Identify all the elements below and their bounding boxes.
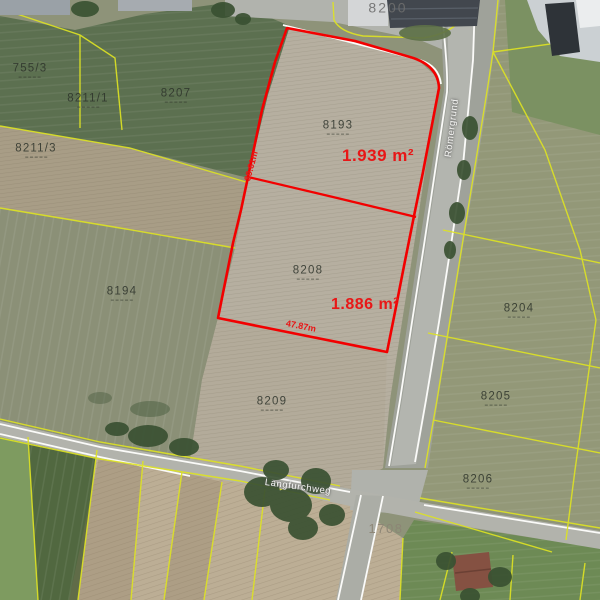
parcel-label-8194: 8194 (107, 286, 137, 301)
label-underline (508, 316, 530, 317)
label-underline (261, 409, 283, 410)
parcel-number: 8205 (481, 391, 511, 403)
label-underline (467, 487, 489, 488)
label-underline (25, 156, 47, 157)
parcel-number: 8209 (257, 396, 287, 408)
parcel-number: 8206 (463, 474, 493, 486)
parcel-label-1708: 1708 (369, 522, 404, 536)
area-label-parcel-8208: 1.886 m² (331, 296, 399, 314)
label-underline (77, 106, 99, 107)
parcel-label-8211-3: 8211/3 (15, 143, 57, 158)
parcel-label-755-3: 755/3 (13, 63, 48, 78)
parcel-label-8207: 8207 (161, 88, 191, 103)
parcel-number: 8211/3 (15, 143, 57, 155)
aerial-map-canvas[interactable]: 8200 755/3 8207 8211/1 8211/3 8194 8193 … (0, 0, 600, 600)
label-underline (327, 133, 349, 134)
parcel-label-8209: 8209 (257, 396, 287, 411)
parcel-label-8204: 8204 (504, 303, 534, 318)
parcel-number: 8207 (161, 88, 191, 100)
parcel-label-8205: 8205 (481, 391, 511, 406)
parcel-number: 8194 (107, 286, 137, 298)
label-underline (165, 101, 187, 102)
label-underline (297, 278, 319, 279)
label-underline (485, 404, 507, 405)
parcel-label-8211-1: 8211/1 (67, 93, 109, 108)
label-underline (19, 76, 41, 77)
parcel-number: 8211/1 (67, 93, 109, 105)
aerial-imagery-layer (0, 0, 600, 600)
parcel-label-8200: 8200 (368, 0, 407, 15)
parcel-number: 8193 (323, 120, 353, 132)
parcel-label-8206: 8206 (463, 474, 493, 489)
parcel-number: 755/3 (13, 63, 48, 75)
parcel-label-8193: 8193 (323, 120, 353, 135)
parcel-number: 8204 (504, 303, 534, 315)
label-underline (111, 299, 133, 300)
parcel-label-8208: 8208 (293, 265, 323, 280)
parcel-number: 8208 (293, 265, 323, 277)
area-label-parcel-8193: 1.939 m² (342, 146, 414, 166)
